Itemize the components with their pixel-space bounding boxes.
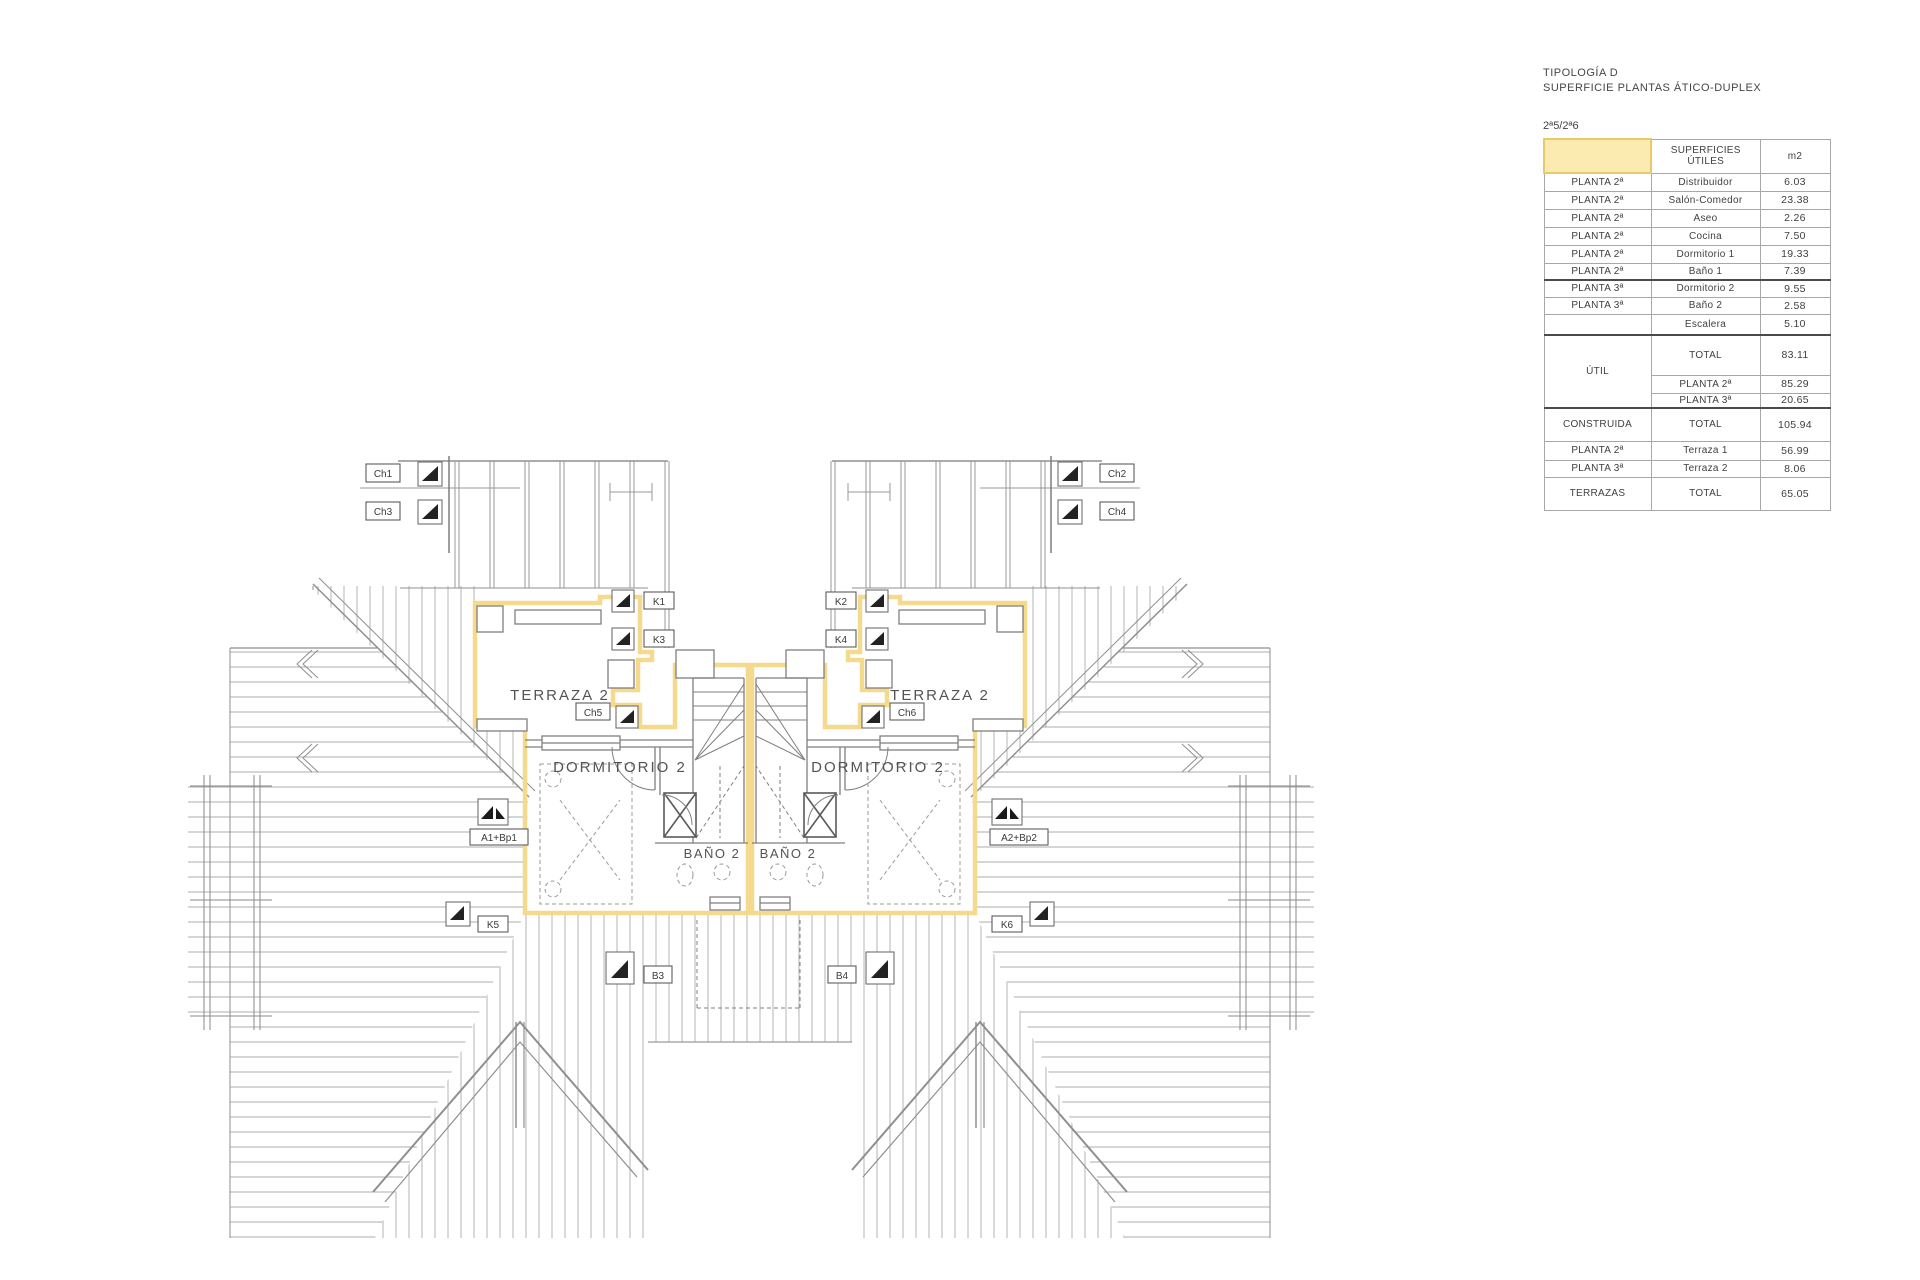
triangle-marker-icon — [418, 462, 442, 486]
tag-b3: B3 — [652, 971, 665, 982]
tag-b4: B4 — [836, 971, 849, 982]
table-row: PLANTA 2ªSalón-Comedor23.38 — [1544, 191, 1830, 209]
surface-table: SUPERFICIESÚTILES m2 PLANTA 2ªDistribuid… — [1543, 138, 1831, 511]
table-row: PLANTA 2ªBaño 17.39 — [1544, 263, 1830, 280]
triangle-marker-icon — [612, 628, 634, 650]
table-row: PLANTA 3ªTerraza 28.06 — [1544, 460, 1830, 477]
tag-a2: A2+Bp2 — [1001, 833, 1037, 844]
header-superficies: SUPERFICIESÚTILES — [1651, 139, 1760, 173]
table-row: PLANTA 2ªDistribuidor6.03 — [1544, 173, 1830, 191]
unit-outline — [475, 597, 1025, 913]
tag-ch4: Ch4 — [1108, 507, 1127, 518]
surface-panel: TIPOLOGÍA D SUPERFICIE PLANTAS ÁTICO-DUP… — [1543, 66, 1843, 511]
table-row: CONSTRUIDATOTAL105.94 — [1544, 408, 1830, 441]
room-label-terraza-right: TERRAZA 2 — [890, 687, 990, 704]
room-label-terraza-left: TERRAZA 2 — [510, 687, 610, 704]
legend-yellow-cell — [1544, 139, 1651, 173]
tag-k3: K3 — [653, 635, 666, 646]
triangle-marker-icon — [612, 590, 634, 612]
panel-subtitle: 2ª5/2ª6 — [1543, 120, 1843, 132]
panel-title-line2: SUPERFICIE PLANTAS ÁTICO-DUPLEX — [1543, 81, 1843, 96]
tag-k5: K5 — [487, 920, 500, 931]
table-row: PLANTA 2ªCocina7.50 — [1544, 227, 1830, 245]
triangle-marker-icon — [866, 628, 888, 650]
triangle-marker-icon — [446, 902, 470, 926]
triangle-marker-icon — [1058, 462, 1082, 486]
triangle-marker-icon — [1030, 902, 1054, 926]
tag-ch2: Ch2 — [1108, 469, 1127, 480]
triangle-marker-icon — [862, 706, 884, 728]
triangle-marker-icon — [616, 706, 638, 728]
table-row: PLANTA 2ªDormitorio 119.33 — [1544, 245, 1830, 263]
table-header-row: SUPERFICIESÚTILES m2 — [1544, 139, 1830, 173]
tag-ch6: Ch6 — [898, 708, 917, 719]
room-label-dorm-left: DORMITORIO 2 — [553, 759, 687, 776]
tag-ch5: Ch5 — [584, 708, 603, 719]
table-row: PLANTA 2ªTerraza 156.99 — [1544, 441, 1830, 460]
table-row: PLANTA 3ªDormitorio 29.55 — [1544, 280, 1830, 297]
tag-ch1: Ch1 — [374, 469, 393, 480]
double-triangle-marker-icon — [992, 799, 1022, 825]
table-row: PLANTA 3ªBaño 22.58 — [1544, 297, 1830, 314]
header-m2: m2 — [1760, 139, 1830, 173]
tag-k2: K2 — [835, 597, 848, 608]
tag-ch3: Ch3 — [374, 507, 393, 518]
table-row: PLANTA 2ªAseo2.26 — [1544, 209, 1830, 227]
triangle-marker-icon — [418, 500, 442, 524]
drawing-sheet: TERRAZA 2 TERRAZA 2 DORMITORIO 2 DORMITO… — [0, 0, 1920, 1280]
triangle-marker-icon — [1058, 500, 1082, 524]
tag-k4: K4 — [835, 635, 848, 646]
room-label-dorm-right: DORMITORIO 2 — [811, 759, 945, 776]
tag-k1: K1 — [653, 597, 666, 608]
tag-k6: K6 — [1001, 920, 1014, 931]
triangle-marker-icon — [866, 590, 888, 612]
double-triangle-marker-icon — [478, 799, 508, 825]
triangle-marker-icon — [866, 952, 894, 984]
panel-title-line1: TIPOLOGÍA D — [1543, 66, 1843, 81]
tag-a1: A1+Bp1 — [481, 833, 517, 844]
table-row: Escalera5.10 — [1544, 314, 1830, 335]
table-row: TERRAZASTOTAL65.05 — [1544, 477, 1830, 510]
room-label-bano-left: BAÑO 2 — [684, 846, 741, 861]
triangle-marker-icon — [606, 952, 634, 984]
table-row: ÚTILTOTAL83.11 — [1544, 335, 1830, 375]
room-label-bano-right: BAÑO 2 — [760, 846, 817, 861]
